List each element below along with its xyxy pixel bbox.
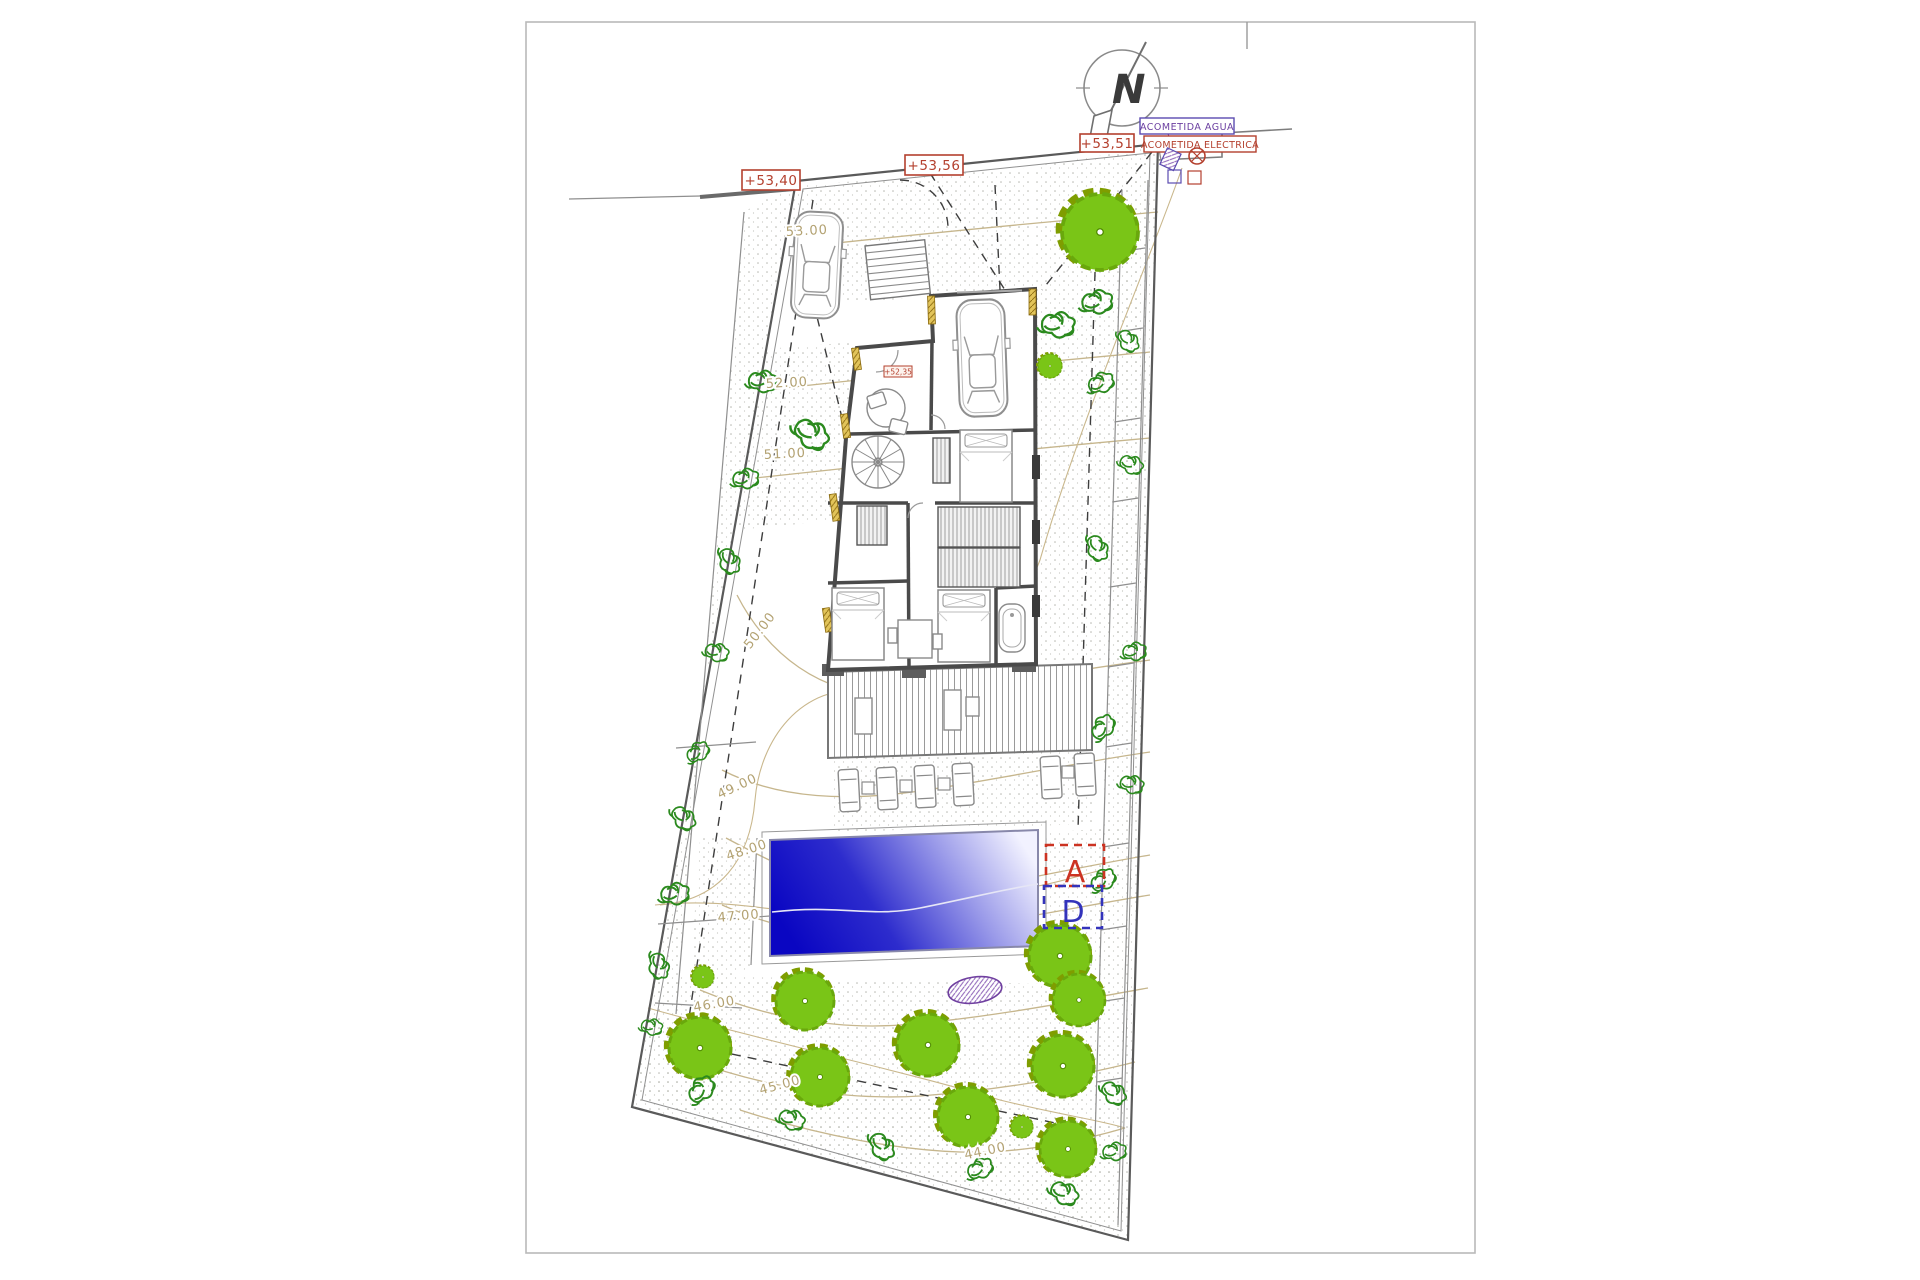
elevation-mid-label: +53,56 bbox=[908, 158, 961, 174]
sun-lounger bbox=[914, 765, 936, 808]
site-plan-drawing: A D N +53,40 +53,56 +53,51 +52,35 ACOMET… bbox=[0, 0, 1920, 1280]
pool-water bbox=[770, 830, 1038, 956]
sun-lounger bbox=[1040, 756, 1062, 799]
window bbox=[1032, 455, 1040, 479]
side-table bbox=[1062, 766, 1074, 778]
pool bbox=[762, 822, 1046, 964]
wardrobe bbox=[857, 506, 887, 545]
exterior-stairs bbox=[865, 240, 930, 300]
utility-water-label: ACOMETIDA AGUA bbox=[1140, 122, 1234, 133]
deck-planter bbox=[855, 698, 872, 734]
deck-planter bbox=[944, 690, 961, 730]
desk bbox=[898, 620, 932, 658]
elevation-marker-mid: +53,56 bbox=[905, 155, 963, 175]
side-table bbox=[900, 780, 912, 792]
bed-right bbox=[938, 590, 990, 662]
desk-chair bbox=[933, 634, 942, 649]
deck-planter bbox=[966, 697, 979, 716]
elevation-right-label: +53,51 bbox=[1081, 136, 1134, 152]
contour-label-53: 53.00 bbox=[785, 223, 828, 240]
bed-master bbox=[960, 430, 1012, 502]
utility-electric: ACOMETIDA ELECTRICA bbox=[1141, 136, 1259, 152]
bed-left bbox=[832, 588, 884, 660]
desk-chair bbox=[888, 628, 897, 643]
contour-label-52: 52.00 bbox=[765, 375, 808, 392]
spiral-staircase bbox=[852, 436, 904, 488]
wardrobe bbox=[938, 507, 1020, 547]
window bbox=[1032, 520, 1040, 544]
wardrobe bbox=[933, 438, 950, 483]
sun-lounger bbox=[838, 769, 860, 812]
deck-terrace bbox=[822, 660, 1092, 758]
side-table bbox=[938, 778, 950, 790]
contour-label-51: 51.00 bbox=[763, 446, 806, 463]
elevation-marker-left: +53,40 bbox=[742, 170, 800, 190]
elevation-marker-right: +53,51 bbox=[1080, 134, 1134, 152]
elevation-interior-label: +52,35 bbox=[884, 368, 912, 377]
sun-lounger bbox=[1074, 753, 1096, 796]
side-table bbox=[862, 782, 874, 794]
window bbox=[1032, 595, 1040, 617]
north-label: N bbox=[1112, 67, 1145, 113]
elevation-marker-interior: +52,35 bbox=[884, 366, 912, 377]
wardrobe bbox=[938, 548, 1020, 587]
section-d-label: D bbox=[1061, 895, 1084, 930]
sun-lounger bbox=[876, 767, 898, 810]
elevation-left-label: +53,40 bbox=[745, 173, 798, 189]
sun-lounger bbox=[952, 763, 974, 806]
car-garage bbox=[951, 299, 1012, 418]
